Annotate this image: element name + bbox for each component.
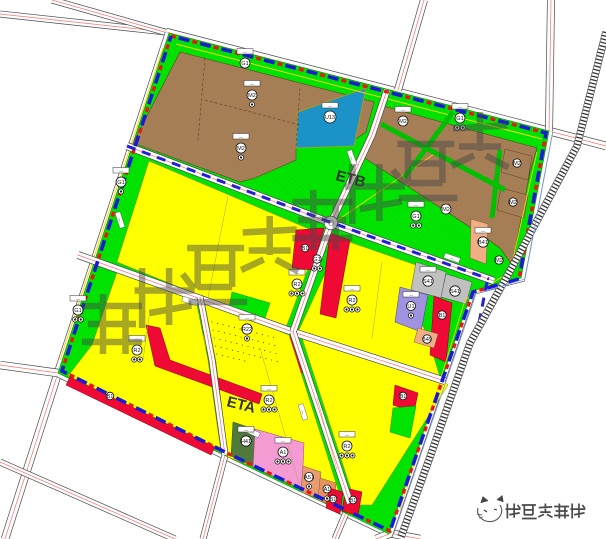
svg-text:A1: A1	[324, 487, 331, 493]
svg-text:B1: B1	[350, 498, 357, 504]
svg-text:––: ––	[244, 428, 248, 432]
svg-text:––: ––	[76, 297, 80, 301]
svg-text:A1: A1	[280, 450, 287, 456]
svg-text:M2: M2	[495, 258, 503, 264]
svg-text:––: ––	[458, 105, 462, 109]
svg-text:R2: R2	[265, 398, 272, 404]
svg-text:––: ––	[345, 433, 349, 437]
svg-text:M2: M2	[248, 93, 256, 99]
svg-text:M2: M2	[442, 207, 450, 213]
svg-text:––: ––	[409, 293, 413, 297]
svg-text:G1: G1	[241, 61, 248, 67]
svg-text:G1: G1	[117, 180, 124, 186]
svg-text:S41: S41	[450, 289, 460, 295]
svg-text:R2: R2	[343, 444, 350, 450]
svg-text:––: ––	[267, 387, 271, 391]
svg-text:––: ––	[328, 104, 332, 108]
svg-text:B49: B49	[422, 337, 432, 343]
svg-text:G1: G1	[456, 116, 463, 122]
svg-text:U1: U1	[407, 304, 414, 310]
svg-text:––: ––	[239, 135, 243, 139]
svg-text:––: ––	[281, 439, 285, 443]
svg-text:R2: R2	[348, 298, 355, 304]
svg-text:––: ––	[401, 108, 405, 112]
svg-text:––: ––	[245, 316, 249, 320]
svg-text:R2: R2	[133, 348, 140, 354]
svg-text:––: ––	[350, 287, 354, 291]
svg-text:R2: R2	[293, 282, 300, 288]
svg-text:R22: R22	[242, 327, 252, 333]
svg-text:––: ––	[426, 268, 430, 272]
svg-text:G1: G1	[313, 257, 320, 263]
svg-text:G1: G1	[74, 308, 81, 314]
svg-text:M2: M2	[237, 146, 245, 152]
svg-text:U13: U13	[325, 115, 335, 121]
svg-text:––: ––	[481, 229, 485, 233]
svg-text:G1: G1	[412, 214, 419, 220]
svg-text:B41: B41	[478, 240, 488, 246]
svg-text:B1: B1	[439, 313, 446, 319]
svg-text:B1: B1	[107, 394, 114, 400]
svg-text:M2: M2	[399, 119, 407, 125]
svg-text:B1: B1	[330, 497, 337, 503]
svg-text:––: ––	[119, 169, 123, 173]
svg-text:H41: H41	[241, 439, 251, 445]
svg-text:B1: B1	[400, 394, 407, 400]
svg-text:––: ––	[250, 82, 254, 86]
svg-text:B1: B1	[302, 246, 309, 252]
svg-text:––: ––	[243, 50, 247, 54]
svg-text:M2: M2	[509, 200, 517, 206]
svg-text:A51: A51	[304, 475, 314, 481]
svg-text:S41: S41	[423, 279, 433, 285]
svg-text:M2: M2	[513, 161, 521, 167]
svg-text:––: ––	[414, 203, 418, 207]
